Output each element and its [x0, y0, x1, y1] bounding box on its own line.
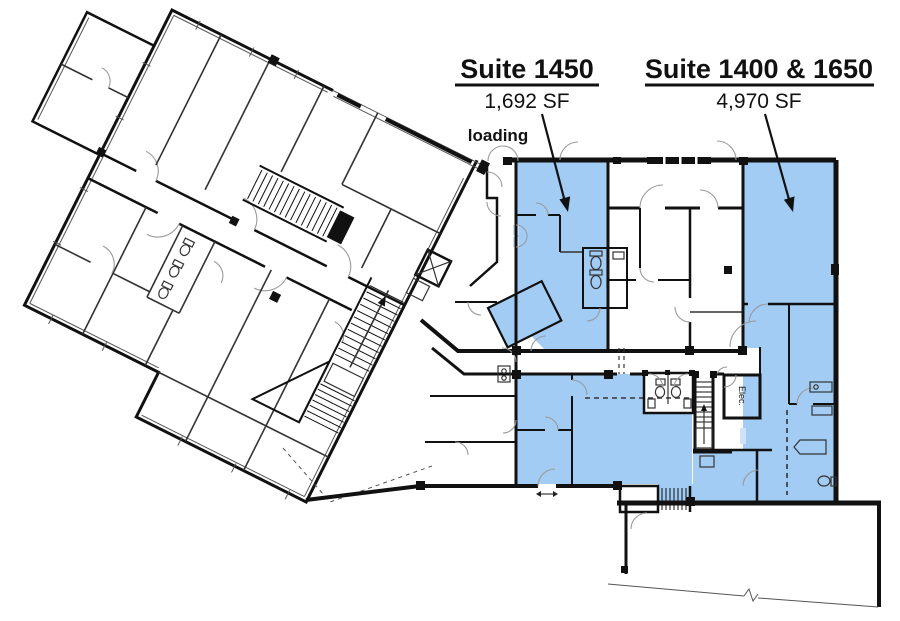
suite-1450-title: Suite 1450 [460, 54, 594, 84]
restroom-lower [642, 370, 695, 413]
break-symbol [744, 589, 758, 601]
suite-below-stair-highlight [693, 450, 772, 502]
wing-stair [243, 166, 357, 248]
suite-highlight-fills [488, 162, 835, 502]
terrace [608, 503, 879, 607]
loading-label: loading [468, 126, 528, 145]
left-wing [0, 0, 498, 518]
stairwell [692, 367, 732, 452]
suite-1400-1650-title: Suite 1400 & 1650 [645, 54, 873, 84]
suite-1450-area: 1,692 SF [484, 90, 569, 113]
wing-restroom [147, 226, 215, 314]
floor-plan-page: Elec. [0, 0, 900, 621]
suite-1400-1650-area: 4,970 SF [716, 90, 801, 113]
floor-plan-canvas: Elec. [0, 0, 900, 621]
electrical-room-label: Elec. [737, 386, 747, 406]
